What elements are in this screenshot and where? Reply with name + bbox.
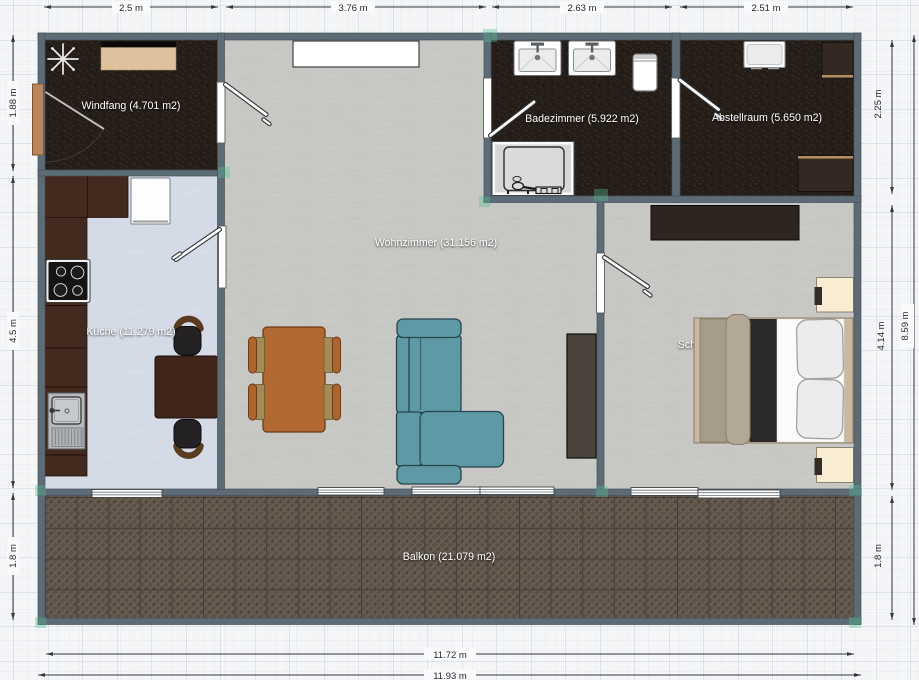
svg-text:Küche (11.279 m2): Küche (11.279 m2) (86, 326, 175, 338)
svg-text:3.76 m: 3.76 m (338, 3, 367, 14)
svg-text:Abstellraum (5.650 m2): Abstellraum (5.650 m2) (712, 112, 822, 124)
svg-text:11.93 m: 11.93 m (433, 671, 467, 680)
svg-text:4.5 m: 4.5 m (8, 319, 19, 343)
svg-text:Balkon (21.079 m2): Balkon (21.079 m2) (403, 551, 495, 563)
svg-text:1.8 m: 1.8 m (8, 544, 19, 568)
svg-text:Wohnzimmer (31.156 m2): Wohnzimmer (31.156 m2) (375, 237, 497, 249)
svg-text:Windfang (4.701 m2): Windfang (4.701 m2) (82, 100, 181, 112)
svg-text:1.8 m: 1.8 m (873, 544, 884, 568)
svg-text:2.25 m: 2.25 m (873, 89, 884, 118)
svg-text:1.88 m: 1.88 m (8, 88, 19, 117)
svg-text:2.5 m: 2.5 m (119, 3, 143, 14)
svg-text:2.63 m: 2.63 m (567, 3, 596, 14)
svg-text:8.59 m: 8.59 m (900, 311, 911, 340)
svg-text:11.72 m: 11.72 m (433, 650, 467, 661)
svg-text:Badezimmer (5.922 m2): Badezimmer (5.922 m2) (525, 113, 639, 125)
svg-text:4.14 m: 4.14 m (876, 321, 887, 350)
svg-text:2.51 m: 2.51 m (751, 3, 780, 14)
